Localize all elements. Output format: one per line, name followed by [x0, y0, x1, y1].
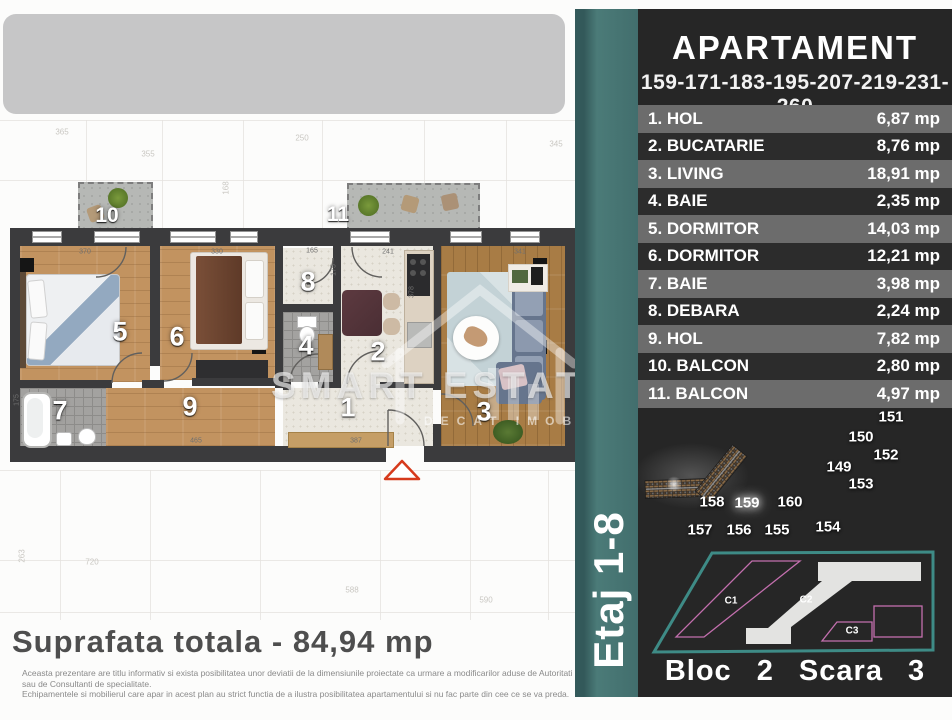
room-row: 6. DORMITOR12,21 mp: [638, 243, 952, 271]
room-name: 9. HOL: [648, 329, 703, 349]
site-unit-154: 154: [815, 519, 840, 536]
room-row: 9. HOL7,82 mp: [638, 325, 952, 353]
bloc-scara-caption: Bloc 2 Scara 3: [638, 655, 952, 688]
room-row: 3. LIVING18,91 mp: [638, 160, 952, 188]
plan-room-number-9: 9: [182, 392, 197, 423]
block-c3-label: C3: [846, 626, 859, 637]
block-c2-label: C2: [800, 595, 813, 606]
site-unit-158: 158: [699, 494, 724, 511]
room-name: 4. BAIE: [648, 191, 708, 211]
room-name: 7. BAIE: [648, 274, 708, 294]
plan-room-number-4: 4: [298, 331, 313, 362]
room-area: 7,82 mp: [877, 329, 940, 349]
plan-dimension-label: 465: [190, 438, 202, 445]
plan-dimension-label: 370: [79, 249, 91, 256]
site-unit-150: 150: [848, 429, 873, 446]
plan-dimension-label: 165: [306, 248, 318, 255]
apartment-flyer: { "header": { "title": "APARTAMENT", "un…: [0, 0, 952, 720]
plan-room-number-7: 7: [52, 396, 67, 427]
room-name: 3. LIVING: [648, 164, 724, 184]
plan-dimension-label: 175: [14, 394, 21, 406]
site-unit-160: 160: [777, 494, 802, 511]
block-c1-label: C1: [725, 596, 738, 607]
room-name: 8. DEBARA: [648, 301, 740, 321]
room-name: 6. DORMITOR: [648, 246, 759, 266]
entrance-marker-icon: [385, 461, 419, 479]
plan-room-number-5: 5: [112, 317, 127, 348]
plan-dimension-label: 341: [514, 249, 526, 256]
plan-room-number-6: 6: [169, 322, 184, 353]
room-table: 1. HOL6,87 mp2. BUCATARIE8,76 mp3. LIVIN…: [638, 9, 952, 409]
plan-dimension-label: 378: [409, 286, 416, 298]
room-row: 7. BAIE3,98 mp: [638, 270, 952, 298]
total-area-label: Suprafata totala - 84,94 mp: [12, 624, 434, 660]
room-row: 10. BALCON2,80 mp: [638, 353, 952, 381]
room-area: 2,24 mp: [877, 301, 940, 321]
site-unit-156: 156: [726, 522, 751, 539]
disclaimer: Aceasta prezentare are titlu informativ …: [22, 668, 582, 700]
room-row: 4. BAIE2,35 mp: [638, 188, 952, 216]
room-name: 10. BALCON: [648, 356, 749, 376]
room-area: 18,91 mp: [867, 164, 940, 184]
room-area: 3,98 mp: [877, 274, 940, 294]
floor-range-label: Etaj 1-8: [585, 511, 633, 668]
plan-room-number-8: 8: [300, 267, 315, 298]
site-unit-157: 157: [687, 522, 712, 539]
room-row: 2. BUCATARIE8,76 mp: [638, 133, 952, 161]
room-row: 1. HOL6,87 mp: [638, 105, 952, 133]
site-unit-151: 151: [878, 409, 903, 426]
site-unit-153: 153: [848, 476, 873, 493]
room-name: 2. BUCATARIE: [648, 136, 765, 156]
site-unit-149: 149: [826, 459, 851, 476]
room-name: 5. DORMITOR: [648, 219, 759, 239]
room-row: 8. DEBARA2,24 mp: [638, 298, 952, 326]
plan-dimension-label: 175: [331, 264, 338, 276]
plan-dimension-label: 241: [382, 249, 394, 256]
site-unit-155: 155: [764, 522, 789, 539]
plan-room-number-11: 11: [327, 203, 349, 227]
room-area: 2,35 mp: [877, 191, 940, 211]
disclaimer-line-2: Echipamentele si mobilierul care apar in…: [22, 689, 582, 700]
room-area: 2,80 mp: [877, 356, 940, 376]
room-row: 5. DORMITOR14,03 mp: [638, 215, 952, 243]
room-area: 8,76 mp: [877, 136, 940, 156]
site-unit-152: 152: [873, 447, 898, 464]
plan-dimension-label: 330: [211, 249, 223, 256]
plan-room-number-10: 10: [95, 204, 118, 228]
room-list: 1. HOL6,87 mp2. BUCATARIE8,76 mp3. LIVIN…: [638, 105, 952, 408]
plan-dimension-label: 387: [350, 438, 362, 445]
disclaimer-line-1: Aceasta prezentare are titlu informativ …: [22, 668, 582, 689]
site-plan-graphic: [638, 395, 952, 555]
scara-2-highlight: [746, 562, 921, 644]
plan-room-number-2: 2: [370, 337, 385, 368]
room-name: 1. HOL: [648, 109, 703, 129]
block-diagram: [638, 545, 952, 665]
room-area: 14,03 mp: [867, 219, 940, 239]
site-unit-159: 159: [734, 495, 759, 512]
room-area: 6,87 mp: [877, 109, 940, 129]
room-area: 12,21 mp: [867, 246, 940, 266]
